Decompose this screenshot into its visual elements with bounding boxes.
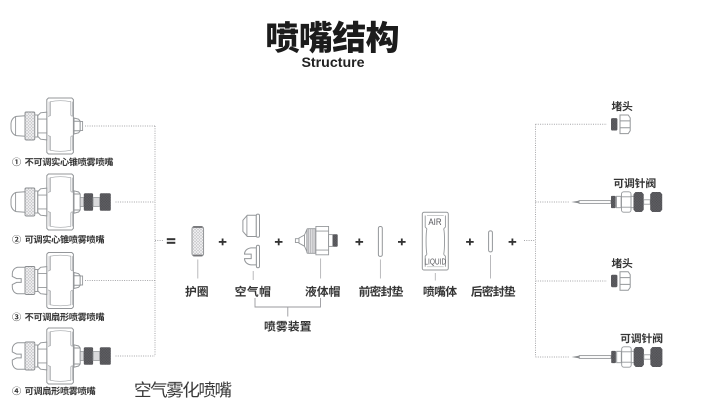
svg-text:AIR: AIR: [428, 217, 441, 227]
svg-text:Structure: Structure: [301, 55, 364, 71]
svg-text:LIQUID: LIQUID: [424, 258, 446, 267]
